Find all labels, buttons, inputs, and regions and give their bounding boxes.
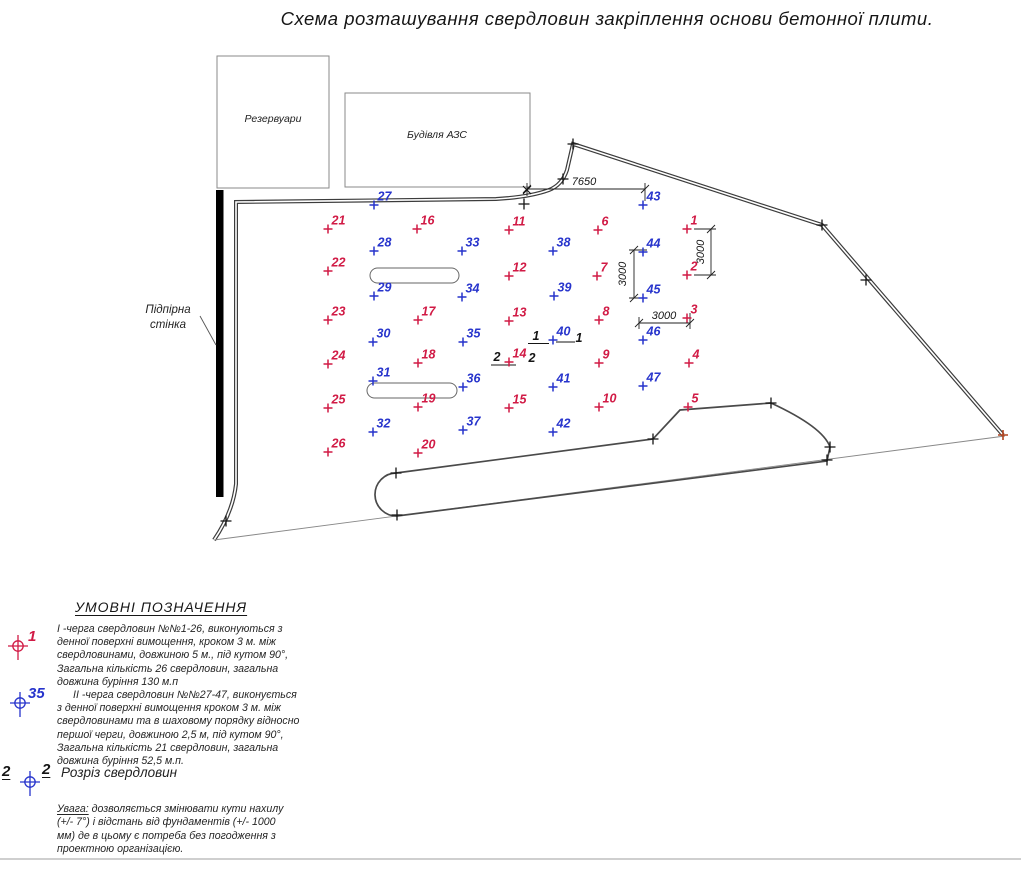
borehole-stage2-33-label: 33 bbox=[466, 236, 480, 250]
section1-right-label: 1 bbox=[576, 331, 583, 345]
borehole-stage1-3-label: 3 bbox=[691, 303, 698, 317]
borehole-stage1-5-label: 5 bbox=[692, 392, 700, 406]
legend-item2-text: ІІ -черга свердловин №№27-47, виконуєтьс… bbox=[57, 689, 369, 768]
borehole-stage2-30-label: 30 bbox=[377, 327, 391, 341]
wall-label-line1: Підпірна bbox=[145, 304, 190, 316]
borehole-stage2-42-label: 42 bbox=[556, 417, 571, 431]
borehole-stage2-40-label: 40 bbox=[556, 325, 571, 339]
borehole-stage2-31-label: 31 bbox=[377, 366, 391, 380]
obstacle-slot-2 bbox=[367, 383, 457, 398]
legend-note-label: Увага: bbox=[57, 803, 89, 815]
section-borehole-icon bbox=[17, 769, 43, 799]
borehole-stage1-11-label: 11 bbox=[513, 215, 526, 229]
site-boundary-line-core bbox=[214, 144, 1003, 540]
borehole-stage1-4-label: 4 bbox=[692, 348, 700, 362]
borehole-stage1-22-label: 22 bbox=[331, 256, 346, 270]
site-boundary-line bbox=[214, 144, 1003, 540]
survey-markers bbox=[221, 139, 1009, 527]
borehole-stage2-44-label: 44 bbox=[646, 237, 661, 251]
borehole-stage2-29-label: 29 bbox=[377, 281, 392, 295]
retaining-wall-label: Підпірна стінка bbox=[134, 303, 202, 333]
borehole-stage1-18-label: 18 bbox=[422, 348, 436, 362]
dim-7650-text: 7650 bbox=[572, 176, 597, 188]
survey-marker bbox=[825, 442, 836, 453]
survey-marker bbox=[861, 275, 872, 286]
plate-outline bbox=[375, 403, 830, 516]
borehole-stage2-38-label: 38 bbox=[557, 236, 571, 250]
dimension-lines bbox=[523, 183, 716, 329]
borehole-stage1-1-label: 1 bbox=[691, 214, 698, 228]
borehole-stage1-13-label: 13 bbox=[513, 306, 527, 320]
wall-leader-line bbox=[200, 316, 216, 345]
legend-item1-number: 1 bbox=[28, 628, 36, 645]
legend-section-left-number: 2 bbox=[2, 763, 10, 780]
borehole-stage1-21-label: 21 bbox=[331, 214, 346, 228]
survey-marker bbox=[822, 455, 833, 466]
survey-marker bbox=[568, 139, 579, 150]
borehole-stage2-45-label: 45 bbox=[646, 283, 662, 297]
survey-marker bbox=[766, 398, 777, 409]
survey-marker bbox=[519, 199, 530, 210]
borehole-stage2-32-label: 32 bbox=[377, 417, 391, 431]
survey-marker bbox=[392, 510, 403, 521]
bottom-divider bbox=[0, 858, 1021, 860]
legend-section-caption: Розріз свердловин bbox=[61, 765, 177, 780]
borehole-stage1-12-label: 12 bbox=[513, 261, 527, 275]
survey-marker bbox=[391, 468, 402, 479]
dim-3000-bottom-text: 3000 bbox=[652, 310, 677, 322]
borehole-points: 1234567891011121314151617181920212223242… bbox=[324, 190, 700, 458]
borehole-stage1-14-label: 14 bbox=[513, 347, 527, 361]
borehole-stage2-43-label: 43 bbox=[646, 190, 661, 204]
borehole-stage2-41-label: 41 bbox=[556, 372, 571, 386]
borehole-stage2-27-label: 27 bbox=[377, 190, 393, 204]
borehole-stage1-20-label: 20 bbox=[421, 438, 436, 452]
borehole-stage1-10-label: 10 bbox=[603, 392, 617, 406]
borehole-stage1-9-label: 9 bbox=[603, 348, 610, 362]
section2-right-label: 2 bbox=[528, 351, 536, 365]
borehole-stage2-34-label: 34 bbox=[466, 282, 480, 296]
borehole-stage1-6-label: 6 bbox=[602, 215, 610, 229]
retaining-wall bbox=[216, 190, 224, 497]
legend-section-right-number: 2 bbox=[42, 761, 50, 778]
borehole-stage1-26-label: 26 bbox=[331, 437, 347, 451]
borehole-stage1-15-label: 15 bbox=[513, 393, 528, 407]
borehole-stage2-35-label: 35 bbox=[467, 327, 482, 341]
borehole-stage1-25-label: 25 bbox=[331, 393, 347, 407]
borehole-stage2-28-label: 28 bbox=[377, 236, 392, 250]
borehole-stage1-17-label: 17 bbox=[422, 305, 437, 319]
section1-left-label: 1 bbox=[533, 329, 540, 343]
borehole-stage1-2-label: 2 bbox=[690, 260, 698, 274]
dim-3000-left-line bbox=[629, 250, 647, 298]
borehole-stage2-36-label: 36 bbox=[467, 372, 482, 386]
borehole-stage1-24-label: 24 bbox=[331, 349, 346, 363]
reservoir-label: Резервуари bbox=[245, 113, 302, 125]
borehole-stage1-7-label: 7 bbox=[601, 261, 609, 275]
section2-left-label: 2 bbox=[493, 350, 501, 364]
legend-item2-number: 35 bbox=[28, 685, 45, 702]
borehole-stage1-8-label: 8 bbox=[603, 305, 610, 319]
drawing-sheet: Схема розташування свердловин закріпленн… bbox=[0, 0, 1021, 871]
borehole-stage2-46-label: 46 bbox=[646, 325, 662, 339]
borehole-stage2-39-label: 39 bbox=[558, 281, 572, 295]
legend-header: УМОВНІ ПОЗНАЧЕННЯ bbox=[75, 599, 247, 615]
dim-3000-left-text: 3000 bbox=[617, 261, 629, 286]
azs-label: Будівля АЗС bbox=[407, 129, 467, 141]
borehole-stage2-47-label: 47 bbox=[646, 371, 662, 385]
borehole-stage1-16-label: 16 bbox=[421, 214, 436, 228]
legend-note-text: дозволяється змінювати кути нахилу (+/- … bbox=[57, 803, 283, 855]
legend-item1-text: І -черга свердловин №№1-26, виконуються … bbox=[57, 623, 367, 689]
wall-label-line2: стінка bbox=[150, 319, 186, 331]
borehole-stage2-37-label: 37 bbox=[467, 415, 482, 429]
legend-note: Увага: дозволяється змінювати кути нахил… bbox=[57, 790, 357, 856]
borehole-stage1-19-label: 19 bbox=[422, 392, 436, 406]
borehole-stage1-23-label: 23 bbox=[331, 305, 346, 319]
